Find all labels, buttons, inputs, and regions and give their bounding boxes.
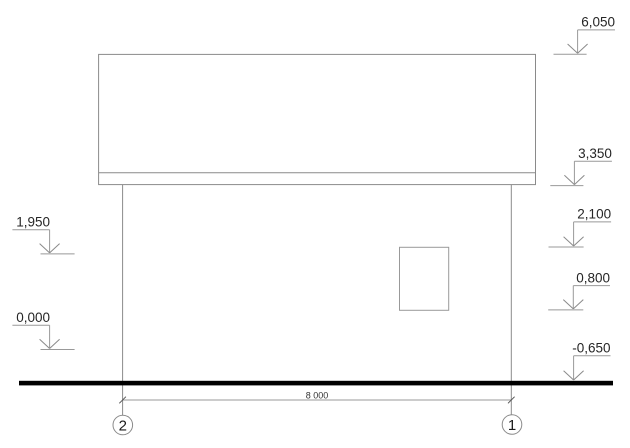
svg-text:3,350: 3,350 [578,146,612,161]
svg-text:8 000: 8 000 [306,390,329,400]
svg-text:6,050: 6,050 [581,15,615,30]
svg-text:0,000: 0,000 [16,310,50,325]
svg-text:-0,650: -0,650 [572,340,610,355]
svg-text:2,100: 2,100 [577,207,611,222]
svg-text:2: 2 [119,417,127,434]
svg-text:1,950: 1,950 [16,214,50,229]
svg-text:1: 1 [508,417,516,434]
svg-text:0,800: 0,800 [576,270,610,285]
